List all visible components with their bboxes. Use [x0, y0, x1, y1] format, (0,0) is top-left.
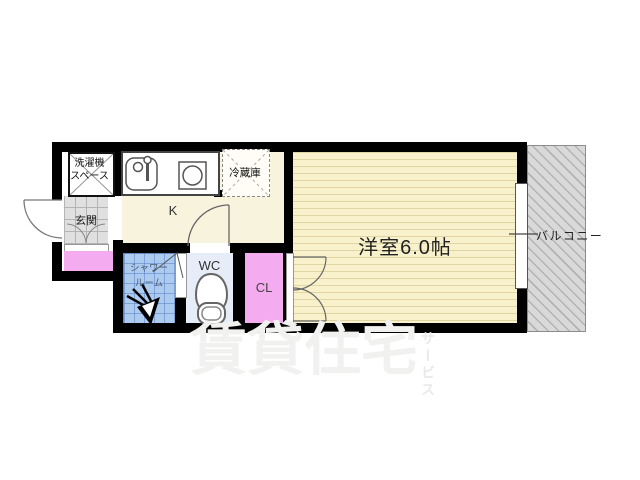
kitchen-label: K [158, 203, 188, 218]
wall-shower-wc-lower [175, 296, 186, 323]
wall-left-upper [52, 142, 62, 202]
watermark-text: 賃貸住宅 [190, 322, 418, 379]
wc-door-opening [190, 243, 230, 253]
wall-kitchen-mainroom [284, 142, 293, 253]
closet-door-sill [286, 253, 294, 323]
closet-label: CL [245, 280, 283, 295]
watermark-sub-text: サービス [421, 331, 435, 399]
entrance-label: 玄関 [64, 212, 108, 228]
main-room-label: 洋室6.0帖 [293, 231, 517, 260]
shower-room-label: シャワー ルーム [123, 262, 175, 291]
wall-right-lower [517, 286, 527, 323]
kitchen-counter [121, 151, 220, 196]
fridge-label: 冷蔵庫 [222, 165, 268, 180]
washer-space-label: 洗濯機 スペース [68, 158, 111, 183]
wc-label: WC [186, 258, 233, 273]
wall-kitchen-bottom-left [123, 243, 190, 253]
entrance-door-opening [52, 200, 62, 242]
hall-pink-strip [64, 251, 113, 271]
wall-shower-left [113, 240, 123, 333]
wall-wc-closet [233, 253, 245, 323]
balcony-label: バルコニー [536, 227, 603, 244]
wall-right-upper [517, 142, 527, 184]
floor-plan: 洗濯機 スペース 冷蔵庫 K 玄関 シャワー ルーム WC CL 洋室6.0帖 … [0, 0, 640, 480]
